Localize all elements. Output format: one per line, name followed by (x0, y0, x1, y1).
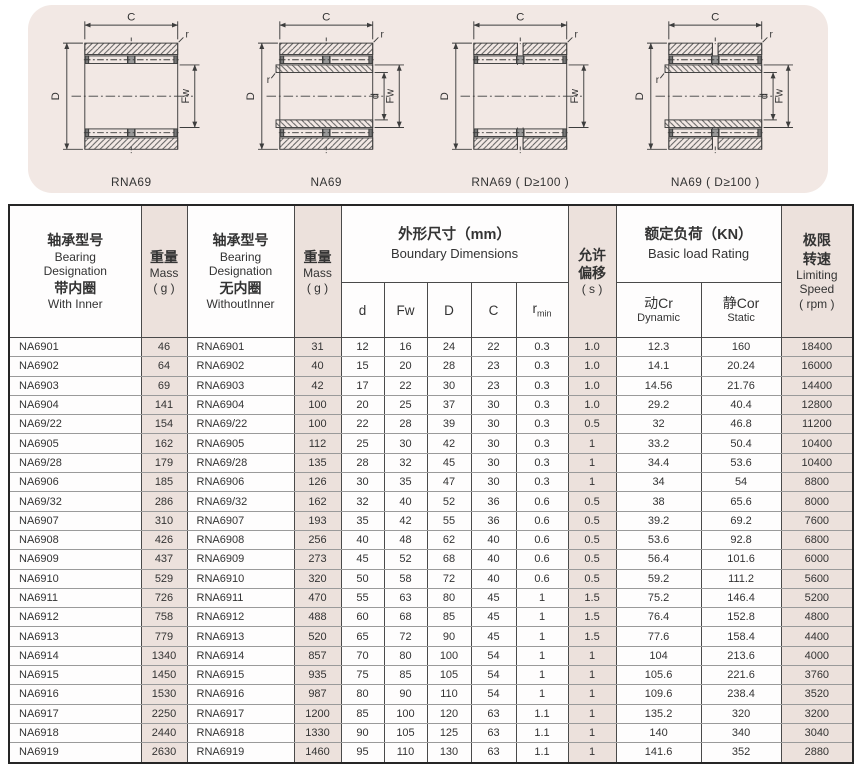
cell-mass-without: 112 (294, 434, 341, 453)
cell-width-c: 54 (471, 666, 516, 685)
cell-mass-with: 46 (141, 338, 187, 357)
cell-d: 32 (341, 492, 384, 511)
cell-dynamic-cr: 105.6 (616, 666, 701, 685)
svg-text:D: D (634, 92, 646, 100)
cell-outer-d: 125 (427, 723, 471, 742)
cell-rna: RNA6914 (187, 646, 294, 665)
cell-d: 28 (341, 453, 384, 472)
bearing-drawing-rna69: CDrFwRNA69 (40, 9, 232, 191)
table-row: NA69161530RNA691698780901105411109.6238.… (9, 685, 853, 704)
cell-dynamic-cr: 56.4 (616, 550, 701, 569)
table-row: NA6911726RNA69114705563804511.575.2146.4… (9, 588, 853, 607)
cell-d: 50 (341, 569, 384, 588)
cell-mass-with: 529 (141, 569, 187, 588)
cell-speed-rpm: 2880 (781, 743, 853, 763)
cell-mass-with: 426 (141, 530, 187, 549)
cell-outer-d: 45 (427, 453, 471, 472)
cell-width-c: 54 (471, 646, 516, 665)
cell-fw: 110 (384, 743, 427, 763)
cell-rna: RNA6906 (187, 473, 294, 492)
cell-rmin: 0.3 (516, 415, 568, 434)
cell-outer-d: 28 (427, 357, 471, 376)
cell-dynamic-cr: 76.4 (616, 608, 701, 627)
cell-rmin: 1 (516, 608, 568, 627)
cell-mass-with: 310 (141, 511, 187, 530)
cell-dynamic-cr: 77.6 (616, 627, 701, 646)
cell-outer-d: 24 (427, 338, 471, 357)
cell-width-c: 45 (471, 588, 516, 607)
cell-mass-without: 256 (294, 530, 341, 549)
table-row: NA6905162RNA6905112253042300.3133.250.41… (9, 434, 853, 453)
svg-text:Fw: Fw (569, 89, 581, 104)
cell-mass-with: 154 (141, 415, 187, 434)
svg-text:C: C (127, 11, 135, 23)
cell-fw: 63 (384, 588, 427, 607)
cell-fw: 48 (384, 530, 427, 549)
col-header-without-inner: 轴承型号 Bearing Designation 无内圈 WithoutInne… (187, 205, 294, 338)
cell-mass-with: 1450 (141, 666, 187, 685)
col-header-C: C (471, 283, 516, 338)
cell-na: NA6901 (9, 338, 141, 357)
cell-fw: 40 (384, 492, 427, 511)
cell-width-c: 23 (471, 376, 516, 395)
svg-text:r: r (575, 29, 579, 40)
cell-width-c: 30 (471, 453, 516, 472)
col-header-mass-with: 重量 Mass ( g ) (141, 205, 187, 338)
cell-mass-without: 100 (294, 415, 341, 434)
cell-static-cor: 340 (701, 723, 781, 742)
cell-offset-s: 1 (568, 723, 616, 742)
table-row: NA6912758RNA69124886068854511.576.4152.8… (9, 608, 853, 627)
svg-text:r: r (770, 29, 774, 40)
cell-static-cor: 238.4 (701, 685, 781, 704)
cell-d: 55 (341, 588, 384, 607)
cell-outer-d: 37 (427, 395, 471, 414)
cell-rna: RNA6902 (187, 357, 294, 376)
table-row: NA6906185RNA6906126303547300.3134548800 (9, 473, 853, 492)
table-body: NA690146RNA690131121624220.31.012.316018… (9, 338, 853, 763)
cell-speed-rpm: 8000 (781, 492, 853, 511)
cell-speed-rpm: 3200 (781, 704, 853, 723)
cell-fw: 68 (384, 608, 427, 627)
table-row: NA69192630RNA6919146095110130631.11141.6… (9, 743, 853, 763)
cell-outer-d: 68 (427, 550, 471, 569)
cell-width-c: 30 (471, 395, 516, 414)
diagram-rna69: CDrFwRNA69 (40, 9, 232, 191)
cell-fw: 20 (384, 357, 427, 376)
cell-rna: RNA6912 (187, 608, 294, 627)
cell-na: NA6918 (9, 723, 141, 742)
cell-mass-with: 437 (141, 550, 187, 569)
cell-rna: RNA6908 (187, 530, 294, 549)
cell-offset-s: 1.0 (568, 376, 616, 395)
cell-rmin: 0.3 (516, 395, 568, 414)
cell-speed-rpm: 5600 (781, 569, 853, 588)
cell-outer-d: 110 (427, 685, 471, 704)
cell-static-cor: 146.4 (701, 588, 781, 607)
cell-width-c: 40 (471, 569, 516, 588)
cell-speed-rpm: 4800 (781, 608, 853, 627)
cell-width-c: 63 (471, 743, 516, 763)
cell-speed-rpm: 8800 (781, 473, 853, 492)
table-row: NA69/28179RNA69/28135283245300.3134.453.… (9, 453, 853, 472)
table-row: NA69182440RNA6918133090105125631.1114034… (9, 723, 853, 742)
cell-rna: RNA69/32 (187, 492, 294, 511)
cell-offset-s: 1 (568, 704, 616, 723)
cell-width-c: 22 (471, 338, 516, 357)
cell-d: 75 (341, 666, 384, 685)
cell-rmin: 0.3 (516, 376, 568, 395)
cell-static-cor: 213.6 (701, 646, 781, 665)
cell-mass-with: 286 (141, 492, 187, 511)
cell-na: NA6903 (9, 376, 141, 395)
cell-mass-without: 40 (294, 357, 341, 376)
cell-fw: 52 (384, 550, 427, 569)
cell-dynamic-cr: 38 (616, 492, 701, 511)
svg-text:r: r (266, 75, 270, 86)
cell-speed-rpm: 7600 (781, 511, 853, 530)
cell-offset-s: 1.5 (568, 627, 616, 646)
cell-static-cor: 160 (701, 338, 781, 357)
cell-mass-without: 470 (294, 588, 341, 607)
cell-d: 65 (341, 627, 384, 646)
cell-speed-rpm: 12800 (781, 395, 853, 414)
cell-rna: RNA6907 (187, 511, 294, 530)
cell-na: NA6909 (9, 550, 141, 569)
cell-d: 85 (341, 704, 384, 723)
cell-rna: RNA6903 (187, 376, 294, 395)
cell-na: NA6906 (9, 473, 141, 492)
cell-rna: RNA6913 (187, 627, 294, 646)
col-header-D: D (427, 283, 471, 338)
table-header: 轴承型号 Bearing Designation 带内圈 With Inner … (9, 205, 853, 338)
cell-mass-without: 857 (294, 646, 341, 665)
cell-rmin: 1.1 (516, 723, 568, 742)
cell-width-c: 40 (471, 550, 516, 569)
cell-static-cor: 111.2 (701, 569, 781, 588)
cell-mass-with: 185 (141, 473, 187, 492)
cell-mass-without: 935 (294, 666, 341, 685)
svg-text:D: D (245, 92, 257, 100)
cell-offset-s: 0.5 (568, 530, 616, 549)
col-header-with-inner: 轴承型号 Bearing Designation 带内圈 With Inner (9, 205, 141, 338)
bearing-spec-table: 轴承型号 Bearing Designation 带内圈 With Inner … (8, 204, 854, 764)
cell-offset-s: 1.0 (568, 338, 616, 357)
cell-rmin: 0.3 (516, 357, 568, 376)
cell-na: NA6919 (9, 743, 141, 763)
cell-na: NA69/28 (9, 453, 141, 472)
cell-speed-rpm: 5200 (781, 588, 853, 607)
cell-mass-with: 779 (141, 627, 187, 646)
cell-outer-d: 105 (427, 666, 471, 685)
cell-d: 95 (341, 743, 384, 763)
col-header-dynamic-cr: 动Cr Dynamic (616, 283, 701, 338)
cell-outer-d: 85 (427, 608, 471, 627)
cell-width-c: 30 (471, 415, 516, 434)
cell-rna: RNA6918 (187, 723, 294, 742)
cell-fw: 105 (384, 723, 427, 742)
cell-rna: RNA6917 (187, 704, 294, 723)
col-group-boundary-dimensions: 外形尺寸（mm） Boundary Dimensions (341, 205, 568, 283)
table-row: NA6909437RNA6909273455268400.60.556.4101… (9, 550, 853, 569)
cell-mass-with: 141 (141, 395, 187, 414)
cell-static-cor: 69.2 (701, 511, 781, 530)
cell-offset-s: 0.5 (568, 492, 616, 511)
cell-outer-d: 47 (427, 473, 471, 492)
cell-speed-rpm: 11200 (781, 415, 853, 434)
cell-mass-without: 100 (294, 395, 341, 414)
cell-d: 17 (341, 376, 384, 395)
cell-rmin: 1 (516, 666, 568, 685)
table-row: NA69172250RNA6917120085100120631.11135.2… (9, 704, 853, 723)
cell-d: 80 (341, 685, 384, 704)
cell-na: NA6913 (9, 627, 141, 646)
cell-width-c: 40 (471, 530, 516, 549)
cell-static-cor: 53.6 (701, 453, 781, 472)
diagram-banner: CDrFwRNA69 CDrrFwdNA69 CDrFwRNA69 ( D≥10… (28, 5, 828, 193)
cell-mass-with: 2440 (141, 723, 187, 742)
cell-d: 20 (341, 395, 384, 414)
cell-width-c: 23 (471, 357, 516, 376)
cell-rmin: 0.6 (516, 492, 568, 511)
cell-width-c: 45 (471, 627, 516, 646)
cell-fw: 100 (384, 704, 427, 723)
cell-fw: 35 (384, 473, 427, 492)
svg-text:d: d (369, 93, 381, 99)
cell-outer-d: 39 (427, 415, 471, 434)
table-row: NA69/32286RNA69/32162324052360.60.53865.… (9, 492, 853, 511)
cell-offset-s: 0.5 (568, 550, 616, 569)
cell-offset-s: 1 (568, 685, 616, 704)
cell-mass-without: 488 (294, 608, 341, 627)
cell-static-cor: 158.4 (701, 627, 781, 646)
svg-text:C: C (322, 11, 330, 23)
cell-d: 70 (341, 646, 384, 665)
cell-offset-s: 1 (568, 666, 616, 685)
cell-na: NA6908 (9, 530, 141, 549)
cell-rna: RNA6909 (187, 550, 294, 569)
col-header-d: d (341, 283, 384, 338)
cell-dynamic-cr: 39.2 (616, 511, 701, 530)
cell-dynamic-cr: 29.2 (616, 395, 701, 414)
table-row: NA6907310RNA6907193354255360.60.539.269.… (9, 511, 853, 530)
cell-outer-d: 90 (427, 627, 471, 646)
cell-speed-rpm: 3520 (781, 685, 853, 704)
cell-mass-with: 2250 (141, 704, 187, 723)
cell-speed-rpm: 14400 (781, 376, 853, 395)
col-header-limiting-speed: 极限 转速 Limiting Speed ( rpm ) (781, 205, 853, 338)
cell-static-cor: 352 (701, 743, 781, 763)
table-row: NA69151450RNA691593575851055411105.6221.… (9, 666, 853, 685)
cell-outer-d: 42 (427, 434, 471, 453)
cell-dynamic-cr: 32 (616, 415, 701, 434)
cell-static-cor: 65.6 (701, 492, 781, 511)
cell-na: NA6910 (9, 569, 141, 588)
cell-dynamic-cr: 135.2 (616, 704, 701, 723)
cell-fw: 72 (384, 627, 427, 646)
cell-fw: 80 (384, 646, 427, 665)
cell-width-c: 30 (471, 434, 516, 453)
cell-width-c: 54 (471, 685, 516, 704)
cell-na: NA6907 (9, 511, 141, 530)
bearing-drawing-rna69-d100: CDrFwRNA69 ( D≥100 ) (429, 9, 621, 191)
cell-outer-d: 100 (427, 646, 471, 665)
cell-rna: RNA6916 (187, 685, 294, 704)
svg-text:Fw: Fw (180, 89, 192, 104)
cell-dynamic-cr: 141.6 (616, 743, 701, 763)
cell-static-cor: 320 (701, 704, 781, 723)
cell-speed-rpm: 3040 (781, 723, 853, 742)
svg-text:NA69: NA69 (310, 175, 341, 189)
cell-offset-s: 1 (568, 453, 616, 472)
cell-dynamic-cr: 75.2 (616, 588, 701, 607)
svg-text:Fw: Fw (384, 89, 396, 104)
cell-mass-without: 520 (294, 627, 341, 646)
cell-offset-s: 0.5 (568, 415, 616, 434)
cell-mass-without: 42 (294, 376, 341, 395)
cell-dynamic-cr: 14.56 (616, 376, 701, 395)
cell-rmin: 0.3 (516, 338, 568, 357)
cell-rna: RNA6901 (187, 338, 294, 357)
cell-rmin: 0.3 (516, 473, 568, 492)
cell-d: 60 (341, 608, 384, 627)
cell-width-c: 63 (471, 723, 516, 742)
cell-dynamic-cr: 12.3 (616, 338, 701, 357)
cell-mass-with: 1530 (141, 685, 187, 704)
cell-mass-with: 1340 (141, 646, 187, 665)
svg-text:RNA69: RNA69 (111, 175, 152, 189)
cell-dynamic-cr: 140 (616, 723, 701, 742)
svg-text:Fw: Fw (774, 89, 786, 104)
bearing-drawing-na69-d100: CDrrFwdNA69 ( D≥100 ) (624, 9, 816, 191)
col-header-mass-without: 重量 Mass ( g ) (294, 205, 341, 338)
cell-fw: 30 (384, 434, 427, 453)
cell-outer-d: 80 (427, 588, 471, 607)
cell-fw: 85 (384, 666, 427, 685)
cell-rmin: 0.3 (516, 453, 568, 472)
cell-fw: 58 (384, 569, 427, 588)
cell-width-c: 36 (471, 492, 516, 511)
table-row: NA69/22154RNA69/22100222839300.30.53246.… (9, 415, 853, 434)
cell-width-c: 63 (471, 704, 516, 723)
cell-mass-with: 758 (141, 608, 187, 627)
svg-text:r: r (186, 29, 190, 40)
cell-dynamic-cr: 14.1 (616, 357, 701, 376)
cell-speed-rpm: 4000 (781, 646, 853, 665)
cell-speed-rpm: 6800 (781, 530, 853, 549)
cell-fw: 90 (384, 685, 427, 704)
cell-fw: 42 (384, 511, 427, 530)
cell-mass-with: 162 (141, 434, 187, 453)
cell-speed-rpm: 16000 (781, 357, 853, 376)
svg-text:r: r (656, 75, 660, 86)
cell-static-cor: 92.8 (701, 530, 781, 549)
cell-na: NA6904 (9, 395, 141, 414)
cell-fw: 22 (384, 376, 427, 395)
cell-na: NA6911 (9, 588, 141, 607)
cell-rmin: 1 (516, 588, 568, 607)
table-row: NA690146RNA690131121624220.31.012.316018… (9, 338, 853, 357)
cell-d: 35 (341, 511, 384, 530)
svg-text:D: D (440, 92, 452, 100)
cell-rna: RNA69/28 (187, 453, 294, 472)
cell-outer-d: 30 (427, 376, 471, 395)
cell-rna: RNA6919 (187, 743, 294, 763)
cell-rna: RNA6905 (187, 434, 294, 453)
cell-fw: 25 (384, 395, 427, 414)
cell-mass-with: 179 (141, 453, 187, 472)
cell-mass-with: 2630 (141, 743, 187, 763)
cell-na: NA69/32 (9, 492, 141, 511)
cell-offset-s: 1.0 (568, 357, 616, 376)
cell-offset-s: 1.0 (568, 395, 616, 414)
diagram-na69: CDrrFwdNA69 (235, 9, 427, 191)
cell-offset-s: 1 (568, 434, 616, 453)
cell-outer-d: 55 (427, 511, 471, 530)
cell-mass-without: 273 (294, 550, 341, 569)
cell-speed-rpm: 3760 (781, 666, 853, 685)
cell-static-cor: 21.76 (701, 376, 781, 395)
col-header-permissible-offset: 允许 偏移 ( s ) (568, 205, 616, 338)
cell-dynamic-cr: 34.4 (616, 453, 701, 472)
cell-speed-rpm: 10400 (781, 434, 853, 453)
cell-speed-rpm: 4400 (781, 627, 853, 646)
cell-rmin: 0.6 (516, 511, 568, 530)
cell-static-cor: 54 (701, 473, 781, 492)
cell-d: 30 (341, 473, 384, 492)
cell-rmin: 0.6 (516, 569, 568, 588)
cell-dynamic-cr: 59.2 (616, 569, 701, 588)
cell-fw: 32 (384, 453, 427, 472)
table-row: NA690369RNA690342172230230.31.014.5621.7… (9, 376, 853, 395)
cell-na: NA6917 (9, 704, 141, 723)
cell-mass-without: 1330 (294, 723, 341, 742)
cell-dynamic-cr: 104 (616, 646, 701, 665)
svg-text:C: C (516, 11, 524, 23)
cell-mass-without: 193 (294, 511, 341, 530)
cell-mass-without: 1200 (294, 704, 341, 723)
cell-static-cor: 50.4 (701, 434, 781, 453)
bearing-drawing-na69: CDrrFwdNA69 (235, 9, 427, 191)
cell-rna: RNA6910 (187, 569, 294, 588)
cell-na: NA6902 (9, 357, 141, 376)
cell-outer-d: 130 (427, 743, 471, 763)
cell-rmin: 1 (516, 646, 568, 665)
cell-offset-s: 1.5 (568, 588, 616, 607)
cell-mass-with: 64 (141, 357, 187, 376)
cell-d: 90 (341, 723, 384, 742)
diagram-na69-d100: CDrrFwdNA69 ( D≥100 ) (624, 9, 816, 191)
cell-static-cor: 101.6 (701, 550, 781, 569)
cell-offset-s: 1 (568, 646, 616, 665)
cell-rmin: 0.6 (516, 530, 568, 549)
diagram-rna69-d100: CDrFwRNA69 ( D≥100 ) (429, 9, 621, 191)
cell-d: 22 (341, 415, 384, 434)
cell-static-cor: 40.4 (701, 395, 781, 414)
cell-mass-without: 1460 (294, 743, 341, 763)
cell-width-c: 30 (471, 473, 516, 492)
table-row: NA69141340RNA691485770801005411104213.64… (9, 646, 853, 665)
cell-rna: RNA6915 (187, 666, 294, 685)
cell-d: 25 (341, 434, 384, 453)
cell-rna: RNA69/22 (187, 415, 294, 434)
cell-offset-s: 0.5 (568, 511, 616, 530)
cell-d: 15 (341, 357, 384, 376)
cell-offset-s: 1 (568, 743, 616, 763)
svg-text:d: d (758, 93, 770, 99)
cell-d: 12 (341, 338, 384, 357)
svg-text:D: D (50, 92, 62, 100)
